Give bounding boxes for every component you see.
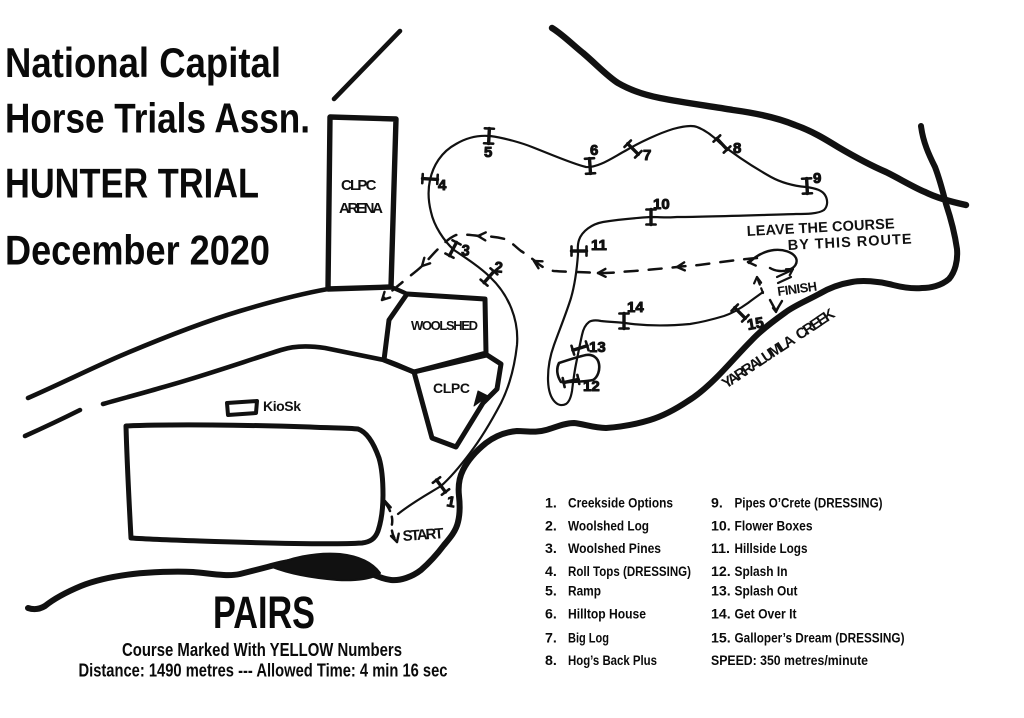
- svg-text:4.: 4.: [545, 564, 557, 580]
- svg-text:Splash Out: Splash Out: [735, 583, 798, 599]
- svg-text:6.: 6.: [545, 607, 557, 623]
- svg-text:Hilltop House: Hilltop House: [568, 607, 646, 623]
- svg-text:December 2020: December 2020: [5, 227, 270, 274]
- svg-text:10.: 10.: [711, 518, 731, 534]
- svg-text:14.: 14.: [711, 607, 731, 623]
- svg-text:Hillside Logs: Hillside Logs: [735, 541, 808, 557]
- svg-text:13.: 13.: [711, 583, 731, 599]
- svg-text:HUNTER TRIAL: HUNTER TRIAL: [5, 160, 259, 207]
- svg-text:Roll Tops (DRESSING): Roll Tops (DRESSING): [568, 564, 691, 580]
- svg-text:3.: 3.: [545, 541, 557, 557]
- svg-text:Horse Trials Assn.: Horse Trials Assn.: [5, 95, 310, 142]
- svg-text:12.: 12.: [711, 564, 731, 580]
- svg-text:Pipes O’Crete (DRESSING): Pipes O’Crete (DRESSING): [735, 496, 883, 512]
- svg-text:Splash In: Splash In: [735, 564, 788, 580]
- svg-text:National Capital: National Capital: [5, 39, 281, 86]
- svg-text:8.: 8.: [545, 653, 557, 669]
- svg-text:PAIRS: PAIRS: [213, 587, 315, 638]
- svg-text:15.: 15.: [711, 630, 731, 646]
- svg-text:1.: 1.: [545, 496, 557, 512]
- svg-text:SPEED: 350 metres/minute: SPEED: 350 metres/minute: [711, 653, 868, 669]
- svg-text:11.: 11.: [711, 541, 730, 557]
- svg-text:Distance: 1490 metres --- A: Distance: 1490 metres --- Allowed Time: …: [79, 661, 448, 681]
- svg-text:9.: 9.: [711, 496, 723, 512]
- svg-text:Hog’s Back Plus: Hog’s Back Plus: [568, 653, 657, 669]
- svg-text:Woolshed Pines: Woolshed Pines: [568, 541, 661, 557]
- svg-text:2.: 2.: [545, 518, 557, 534]
- svg-text:Big Log: Big Log: [568, 630, 609, 646]
- svg-text:Course Marked With YELLOW Nu: Course Marked With YELLOW Numbers: [122, 640, 402, 660]
- svg-text:Creekside Options: Creekside Options: [568, 496, 673, 512]
- svg-text:7.: 7.: [545, 630, 557, 646]
- svg-text:Galloper’s Dream (DRESSING): Galloper’s Dream (DRESSING): [735, 630, 905, 646]
- svg-text:Ramp: Ramp: [568, 583, 601, 599]
- svg-text:5.: 5.: [545, 583, 557, 599]
- svg-text:Get Over It: Get Over It: [735, 607, 797, 623]
- svg-text:Flower Boxes: Flower Boxes: [735, 518, 813, 534]
- svg-text:Woolshed Log: Woolshed Log: [568, 518, 649, 534]
